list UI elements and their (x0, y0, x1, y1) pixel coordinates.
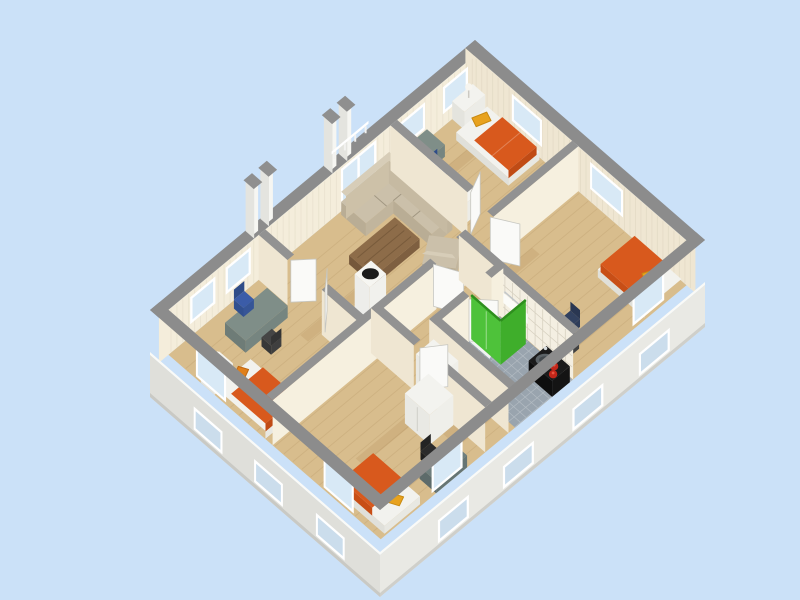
bedroom1-lamp (465, 83, 472, 90)
vanity-red-highlight-2 (552, 372, 555, 375)
stove-pipe-top (362, 268, 379, 279)
vanity-faucet (544, 347, 548, 351)
bedroom3-door-leaf-1 (291, 259, 316, 302)
floor-plan-viewport (0, 0, 800, 600)
chimney-2-side (324, 116, 333, 173)
chimney-1-side (339, 104, 348, 162)
chimney-4-side (246, 181, 255, 239)
floor-plan-3d-render (0, 0, 800, 600)
chimney-3-side (260, 169, 269, 226)
